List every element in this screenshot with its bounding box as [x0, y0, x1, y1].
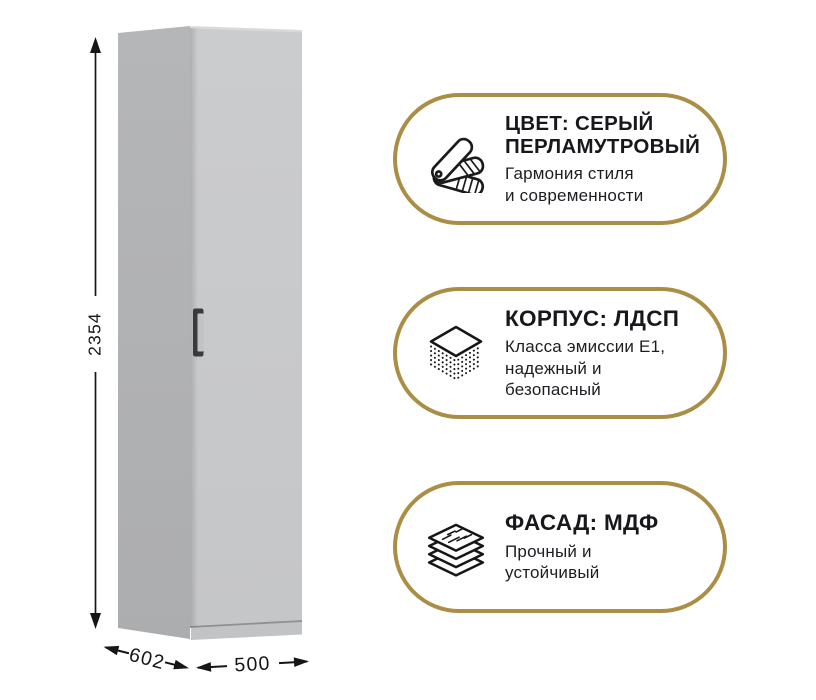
badge-subtitle-line: Класса эмиссии Е1,	[505, 336, 679, 357]
badge-title: ЦВЕТ: СЕРЫЙ ПЕРЛАМУТРОВЫЙ	[505, 112, 700, 159]
badge-subtitle-line: надежный и	[505, 358, 679, 379]
feature-badges: ЦВЕТ: СЕРЫЙ ПЕРЛАМУТРОВЫЙ Гармония стиля…	[0, 0, 816, 700]
badge-text-facade: ФАСАД: МДФ Прочный и устойчивый	[505, 510, 659, 583]
feature-badge-facade: ФАСАД: МДФ Прочный и устойчивый	[393, 481, 727, 613]
badge-text-color: ЦВЕТ: СЕРЫЙ ПЕРЛАМУТРОВЫЙ Гармония стиля…	[505, 112, 700, 207]
badge-title: ФАСАД: МДФ	[505, 510, 659, 536]
badge-subtitle: Прочный и устойчивый	[505, 541, 659, 584]
badge-title-line: ЦВЕТ: СЕРЫЙ	[505, 112, 700, 135]
product-infographic: 2354 602 500	[0, 0, 816, 700]
badge-subtitle-line: безопасный	[505, 379, 679, 400]
badge-subtitle: Класса эмиссии Е1, надежный и безопасный	[505, 336, 679, 400]
badge-title-line: КОРПУС: ЛДСП	[505, 306, 679, 332]
badge-subtitle-line: устойчивый	[505, 562, 659, 583]
feature-badge-color: ЦВЕТ: СЕРЫЙ ПЕРЛАМУТРОВЫЙ Гармония стиля…	[393, 93, 727, 225]
badge-subtitle-line: Прочный и	[505, 541, 659, 562]
badge-subtitle-line: и современности	[505, 185, 700, 206]
badge-title-line: ПЕРЛАМУТРОВЫЙ	[505, 135, 700, 158]
color-fan-icon	[421, 125, 491, 193]
badge-subtitle: Гармония стиля и современности	[505, 163, 700, 206]
badge-text-body: КОРПУС: ЛДСП Класса эмиссии Е1, надежный…	[505, 306, 679, 401]
badge-title-line: ФАСАД: МДФ	[505, 510, 659, 536]
badge-title: КОРПУС: ЛДСП	[505, 306, 679, 332]
mdf-sheets-icon	[421, 514, 491, 580]
feature-badge-body: КОРПУС: ЛДСП Класса эмиссии Е1, надежный…	[393, 287, 727, 419]
badge-subtitle-line: Гармония стиля	[505, 163, 700, 184]
chipboard-layers-icon	[421, 321, 491, 385]
